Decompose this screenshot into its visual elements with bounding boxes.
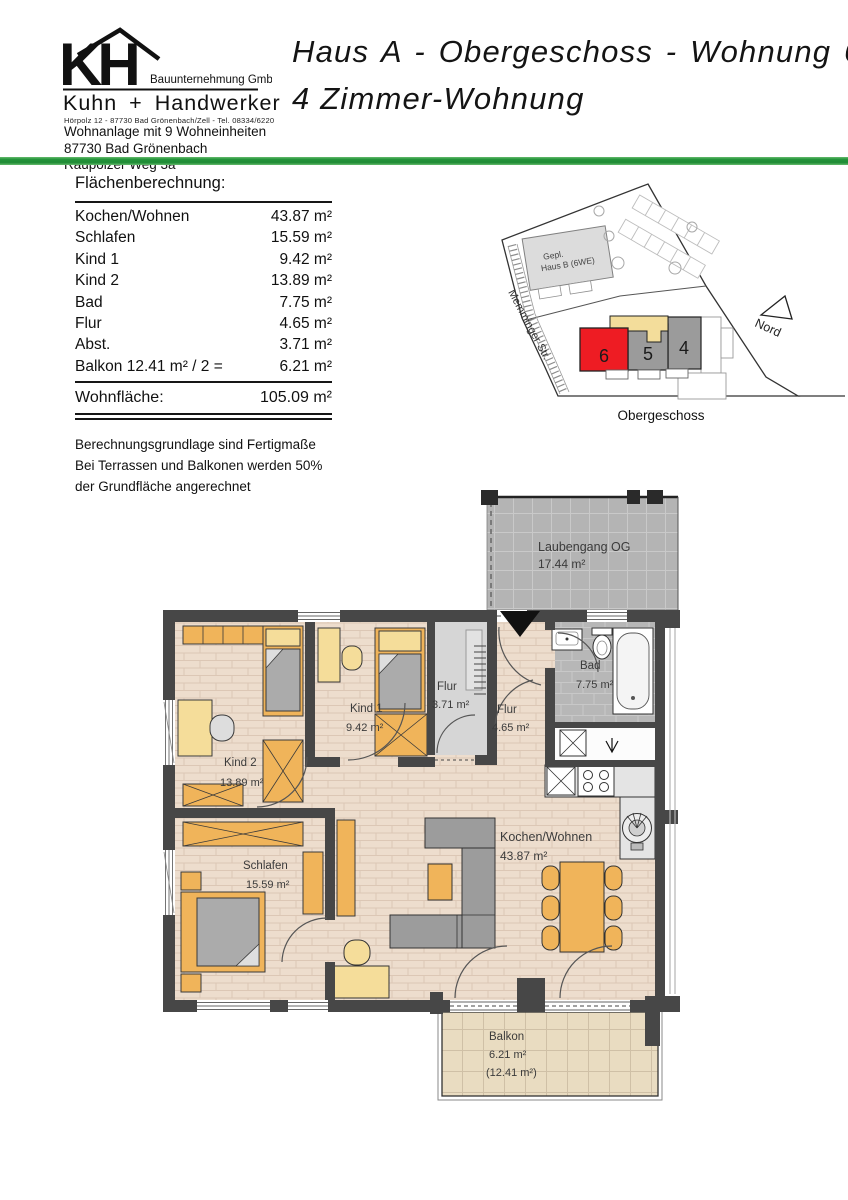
svg-text:7.75 m²: 7.75 m²: [576, 679, 614, 691]
area-row: Bad7.75 m²: [75, 292, 332, 313]
shelf: [337, 820, 355, 916]
logo-monogram: KH: [62, 31, 137, 94]
shelf: [466, 630, 482, 690]
area-row-value: 6.21 m²: [279, 356, 332, 377]
stove: [578, 766, 614, 796]
svg-text:15.59 m²: 15.59 m²: [246, 879, 290, 891]
north-arrow-icon: [761, 296, 792, 319]
sofa: [425, 818, 495, 848]
svg-text:Bad: Bad: [580, 660, 600, 672]
total-value: 105.09 m²: [260, 383, 332, 413]
note-line: Bei Terrassen und Balkonen werden 50%: [75, 455, 332, 476]
unit-4-number: 4: [679, 338, 689, 358]
total-row: Wohnfläche: 105.09 m²: [75, 383, 332, 413]
svg-text:Kochen/Wohnen: Kochen/Wohnen: [500, 830, 592, 844]
area-row-value: 15.59 m²: [271, 227, 332, 248]
title-block: Haus A - Obergeschoss - Wohnung 6 4 Zimm…: [292, 34, 842, 117]
page-subtitle: 4 Zimmer-Wohnung: [292, 81, 842, 117]
plan-sheet: KH Bauunternehmung GmbH Kuhn + Handwerke…: [0, 0, 848, 1200]
svg-text:Kind 2: Kind 2: [224, 757, 257, 769]
svg-text:Flur: Flur: [437, 681, 457, 693]
site-plan: Memminger Str. Gepl. Haus B (6WE): [468, 168, 846, 430]
green-divider: [0, 157, 848, 165]
area-row-value: 7.75 m²: [279, 292, 332, 313]
company-name: Kuhn + Handwerker: [63, 91, 263, 116]
area-row-label: Kochen/Wohnen: [75, 206, 189, 227]
chair: [342, 646, 362, 670]
floor-plan: Laubengang OG 17.44 m² Bad 7.75 m² Flur …: [150, 480, 695, 1110]
area-row-value: 43.87 m²: [271, 206, 332, 227]
svg-text:43.87 m²: 43.87 m²: [500, 849, 547, 863]
svg-text:Kind 1: Kind 1: [350, 703, 383, 715]
svg-text:6.21 m²: 6.21 m²: [489, 1049, 527, 1061]
balcony-door-sill: [450, 1000, 517, 1012]
area-table: Flächenberechnung: Kochen/Wohnen43.87 m²…: [75, 174, 332, 497]
area-row: Balkon 12.41 m² / 2 =6.21 m²: [75, 356, 332, 377]
north-label: Nord: [753, 316, 783, 340]
project-address: Wohnanlage mit 9 Wohneinheiten 87730 Bad…: [64, 124, 266, 174]
wardrobe: [303, 852, 323, 914]
window: [587, 610, 627, 622]
svg-text:(12.41 m²): (12.41 m²): [486, 1067, 537, 1079]
area-row-value: 9.42 m²: [279, 249, 332, 270]
area-table-rows: Kochen/Wohnen43.87 m²Schlafen15.59 m²Kin…: [75, 203, 332, 381]
project-line: Wohnanlage mit 9 Wohneinheiten: [64, 124, 266, 141]
svg-text:3.71 m²: 3.71 m²: [432, 699, 470, 711]
window: [298, 610, 340, 622]
area-row-label: Bad: [75, 292, 103, 313]
area-row: Schlafen15.59 m²: [75, 227, 332, 248]
svg-text:Laubengang OG: Laubengang OG: [538, 540, 630, 554]
area-row-label: Balkon 12.41 m² / 2 =: [75, 356, 223, 377]
unit-6-number: 6: [599, 346, 609, 366]
note-line: Berechnungsgrundlage sind Fertigmaße: [75, 434, 332, 455]
area-row: Kind 213.89 m²: [75, 270, 332, 291]
coffee-table: [428, 864, 452, 900]
svg-text:4.65 m²: 4.65 m²: [492, 722, 530, 734]
page-title: Haus A - Obergeschoss - Wohnung 6: [292, 34, 842, 70]
desk: [333, 966, 389, 998]
area-row-label: Kind 1: [75, 249, 119, 270]
chair: [210, 715, 234, 741]
site-plan-caption: Obergeschoss: [617, 408, 704, 423]
area-row: Abst.3.71 m²: [75, 334, 332, 355]
area-row-label: Abst.: [75, 334, 110, 355]
desk: [178, 700, 212, 756]
nightstand: [181, 872, 201, 890]
svg-text:Balkon: Balkon: [489, 1031, 524, 1043]
nightstand: [181, 974, 201, 992]
balcony-stubs: [606, 369, 688, 379]
balcony-door-sill: [545, 1000, 630, 1012]
svg-text:13.89 m²: 13.89 m²: [220, 777, 264, 789]
table-double-rule: [75, 413, 332, 420]
area-row-label: Flur: [75, 313, 102, 334]
area-row: Flur4.65 m²: [75, 313, 332, 334]
desk: [318, 628, 340, 682]
area-row: Kind 19.42 m²: [75, 249, 332, 270]
window: [163, 850, 175, 915]
area-row: Kochen/Wohnen43.87 m²: [75, 206, 332, 227]
area-row-value: 4.65 m²: [279, 313, 332, 334]
toilet: [592, 628, 612, 635]
company-logo: KH Bauunternehmung GmbH: [62, 22, 272, 94]
unit-5-number: 5: [643, 344, 653, 364]
chair: [344, 940, 370, 965]
svg-text:9.42 m²: 9.42 m²: [346, 722, 384, 734]
svg-text:Flur: Flur: [497, 704, 517, 716]
area-row-label: Schlafen: [75, 227, 135, 248]
area-row-value: 3.71 m²: [279, 334, 332, 355]
area-row-value: 13.89 m²: [271, 270, 332, 291]
company-type: Bauunternehmung GmbH: [150, 74, 272, 86]
svg-text:Schlafen: Schlafen: [243, 860, 288, 872]
window: [288, 1000, 328, 1012]
area-row-label: Kind 2: [75, 270, 119, 291]
window: [197, 1000, 270, 1012]
dining-table: [560, 862, 604, 952]
svg-text:17.44 m²: 17.44 m²: [538, 557, 585, 571]
total-label: Wohnfläche:: [75, 383, 164, 413]
project-line: 87730 Bad Grönenbach: [64, 141, 266, 158]
area-table-heading: Flächenberechnung:: [75, 174, 332, 201]
window: [163, 700, 175, 765]
